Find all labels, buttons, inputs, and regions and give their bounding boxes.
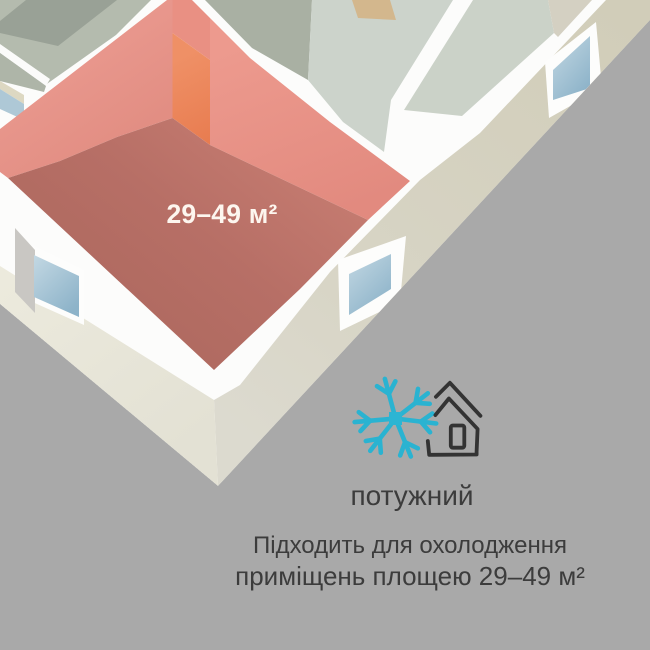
svg-text:29–49 м²: 29–49 м² (166, 199, 277, 229)
svg-text:Підходить для охолодження: Підходить для охолодження (253, 532, 567, 559)
svg-text:приміщень площею 29–49 м²: приміщень площею 29–49 м² (235, 561, 585, 591)
svg-text:потужний: потужний (350, 480, 473, 511)
